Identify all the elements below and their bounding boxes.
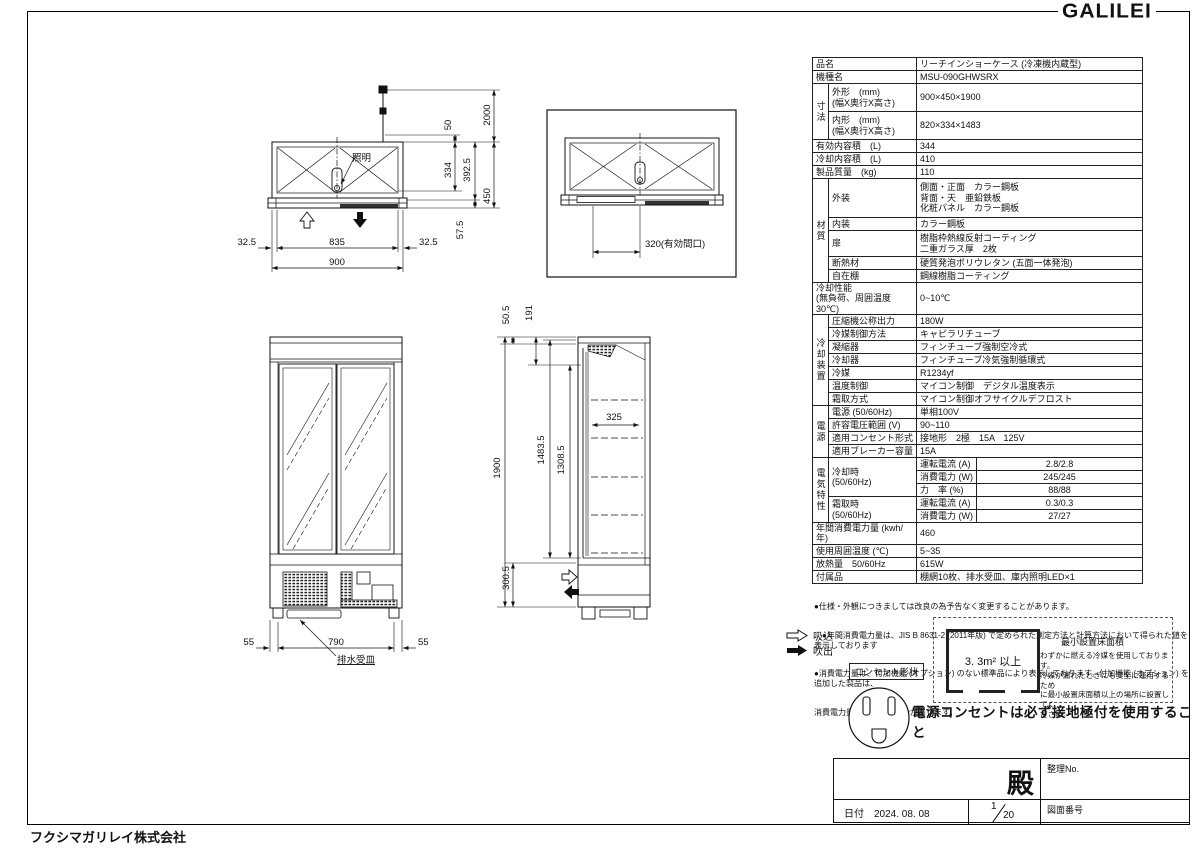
- spec-value-reibai: R1234yf: [917, 367, 1143, 380]
- spec-value-yuko: 344: [917, 140, 1143, 153]
- side-dim-1900: 1900: [492, 457, 503, 478]
- spec-value-hinmei: リーチインショーケース (冷凍機内蔵型): [917, 58, 1143, 71]
- technical-drawing: 照明 32.5 835 32.5 900: [27, 11, 812, 823]
- spec-label-asshuku: 圧縮機公称出力: [829, 315, 917, 328]
- spec-value-cool-pf: 88/88: [977, 484, 1143, 497]
- side-dim-1483-5: 1483.5: [536, 435, 547, 464]
- discharge-arrow-icon: [786, 644, 808, 657]
- spec-value-jizaidana: 鋼線樹脂コーティング: [917, 270, 1143, 283]
- door-gap-right: [1005, 690, 1021, 694]
- spec-label-kishumei: 機種名: [813, 71, 917, 84]
- spec-label-dannetsu: 断熱材: [829, 257, 917, 270]
- spec-value-mass: 110: [917, 166, 1143, 179]
- spec-label-shuui: 使用周囲温度 (℃): [813, 544, 917, 557]
- spec-group-denki: 電気特性: [813, 458, 829, 523]
- spec-label-reikyaku-naiyo: 冷却内容積 (L): [813, 153, 917, 166]
- side-dim-325: 325: [606, 412, 622, 423]
- plan-dim-334: 334: [443, 162, 454, 178]
- door-gap-left: [963, 690, 979, 694]
- front-dim-55-right: 55: [418, 637, 429, 648]
- spec-value-cool-current: 2.8/2.8: [977, 458, 1143, 471]
- spec-value-hounetsu: 615W: [917, 557, 1143, 570]
- min-floor-area-value-box: 3. 3m² 以上: [946, 629, 1040, 693]
- spec-table: 品名 リーチインショーケース (冷凍機内蔵型) 機種名 MSU-090GHWSR…: [812, 57, 1143, 584]
- spec-label-cooling: 冷却時 (50/60Hz): [829, 458, 917, 497]
- spec-value-reibai-seigyo: キャピラリチューブ: [917, 328, 1143, 341]
- front-dim-55-left: 55: [243, 637, 254, 648]
- spec-label-hounetsu: 放熱量 50/60Hz: [813, 557, 917, 570]
- spec-group-zaishitsu: 材質: [813, 179, 829, 283]
- spec-value-nenkan: 460: [917, 523, 1143, 545]
- spec-group-sunpo: 寸法: [813, 84, 829, 140]
- spec-label-dengen: 電源 (50/60Hz): [829, 406, 917, 419]
- spec-label-breaker: 適用ブレーカー容量: [829, 445, 917, 458]
- drawing-sheet: GALILEI フクシマガリレイ株式会社: [0, 0, 1200, 848]
- open-door-plan-view: 320(有効間口): [547, 110, 736, 277]
- spec-value-kyoyo: 90~110: [917, 419, 1143, 432]
- grounded-outlet-icon: [846, 686, 912, 752]
- plan-dim-57-5: 57.5: [455, 221, 466, 240]
- plan-dim-50: 50: [443, 120, 454, 131]
- spec-label-reibai-seigyo: 冷媒制御方法: [829, 328, 917, 341]
- title-block-top-row: 殿 整理No.: [834, 759, 1189, 800]
- spec-label-shimotori: 霜取方式: [829, 393, 917, 406]
- discharge-label: 吹出: [813, 643, 833, 658]
- min-floor-area-note: わずかに燃える冷媒を使用しております。 冷媒が漏れたときにも安全に運用するため …: [1040, 651, 1170, 720]
- min-floor-area-title: 最小設置床面積: [1061, 635, 1124, 648]
- date-cell: 日付 2024. 08. 08: [834, 800, 969, 824]
- side-section-view: 325: [492, 305, 650, 619]
- front-drain-label: 排水受皿: [337, 654, 376, 666]
- spec-value-fuzoku: 棚網10枚、排水受皿、庫内照明LED×1: [917, 570, 1143, 583]
- plan-light-label: 照明: [352, 153, 371, 164]
- spec-label-def-power: 消費電力 (W): [917, 510, 977, 523]
- spec-value-cool-power: 245/245: [977, 471, 1143, 484]
- spec-label-mass: 製品質量 (kg): [813, 166, 917, 179]
- spec-label-cool-power: 消費電力 (W): [917, 471, 977, 484]
- spec-label-jizaidana: 自在棚: [829, 270, 917, 283]
- spec-value-ondo: マイコン制御 デジタル温度表示: [917, 380, 1143, 393]
- spec-value-def-current: 0.3/0.3: [977, 497, 1143, 510]
- plan-dim-32-5-left: 32.5: [238, 237, 257, 248]
- spec-value-gaiso: 側面・正面 カラー鋼板 背面・天 亜鉛鉄板 化粧パネル カラー鋼板: [917, 179, 1143, 218]
- seiri-no-label: 整理No.: [1047, 762, 1079, 775]
- spec-label-kyoyo: 許容電圧範囲 (V): [829, 419, 917, 432]
- spec-label-tobira: 扉: [829, 231, 917, 257]
- spec-label-consent: 適用コンセント形式: [829, 432, 917, 445]
- front-dim-790: 790: [328, 637, 344, 648]
- spec-label-fuzoku: 付属品: [813, 570, 917, 583]
- suction-label: 吸込: [813, 628, 833, 643]
- spec-value-shuui: 5~35: [917, 544, 1143, 557]
- plan-dim-450: 450: [482, 188, 493, 204]
- front-view: 排水受皿 55 790 55: [243, 337, 428, 666]
- spec-value-seino: 0~10℃: [917, 283, 1143, 315]
- galilei-logo: GALILEI: [1058, 1, 1156, 24]
- spec-label-seino: 冷却性能 (無負荷、周囲温度30℃): [813, 283, 917, 315]
- spec-value-gyoshuku: フィンチューブ強制空冷式: [917, 341, 1143, 354]
- suction-arrow-side: [562, 570, 577, 584]
- suction-arrow-icon: [786, 629, 808, 642]
- spec-label-reibai: 冷媒: [829, 367, 917, 380]
- plan-dim-392-5: 392.5: [462, 158, 473, 182]
- spec-value-kishumei: MSU-090GHWSRX: [917, 71, 1143, 84]
- spec-label-yuko: 有効内容積 (L): [813, 140, 917, 153]
- spec-label-reikyakuki: 冷却器: [829, 354, 917, 367]
- spec-value-naikei: 820×334×1483: [917, 112, 1143, 140]
- spec-label-nenkan: 年間消費電力量 (kwh/年): [813, 523, 917, 545]
- airflow-legend: 吸込 吹出: [786, 628, 833, 658]
- outlet-shape-label: コンセント形状: [849, 663, 924, 680]
- spec-value-reikyakuki: フィンチューブ冷気強制循環式: [917, 354, 1143, 367]
- min-floor-area-value: 3. 3m² 以上: [965, 653, 1021, 669]
- spec-value-reikyaku-naiyo: 410: [917, 153, 1143, 166]
- spec-value-shimotori: マイコン制御オフサイクルデフロスト: [917, 393, 1143, 406]
- spec-value-asshuku: 180W: [917, 315, 1143, 328]
- company-name: フクシマガリレイ株式会社: [30, 827, 186, 846]
- spec-value-naiso: カラー鋼板: [917, 218, 1143, 231]
- spec-group-sochi: 冷却装置: [813, 315, 829, 406]
- spec-value-dengen: 単相100V: [917, 406, 1143, 419]
- spec-value-dannetsu: 硬質発泡ポリウレタン (五面一体発泡): [917, 257, 1143, 270]
- spec-value-consent: 接地形 2極 15A 125V: [917, 432, 1143, 445]
- spec-label-cool-pf: 力 率 (%): [917, 484, 977, 497]
- spec-label-naikei: 内形 (mm) (幅X奥行X高さ): [829, 112, 917, 140]
- spec-label-defrost: 霜取時 (50/60Hz): [829, 497, 917, 523]
- page-number: 1: [991, 801, 997, 812]
- title-block: 殿 整理No. 日付 2024. 08. 08 1 20 図面番号: [833, 758, 1190, 823]
- spec-label-hinmei: 品名: [813, 58, 917, 71]
- suction-arrow-plan: [300, 212, 314, 228]
- spec-label-gaikei: 外形 (mm) (幅X奥行X高さ): [829, 84, 917, 112]
- spec-group-dengen: 電源: [813, 406, 829, 458]
- spec-value-tobira: 樹脂枠熱線反射コーティング 二重ガラス厚 2枚: [917, 231, 1143, 257]
- spec-label-naiso: 内装: [829, 218, 917, 231]
- spec-value-gaikei: 900×450×1900: [917, 84, 1143, 112]
- spec-value-def-power: 27/27: [977, 510, 1143, 523]
- plan-dim-835: 835: [329, 237, 345, 248]
- side-dim-300-5: 300.5: [501, 566, 512, 590]
- footnote-line-1: ●仕様・外観につきましては改良の為予告なく変更することがあります。: [814, 602, 1192, 612]
- dono-suffix: 殿: [1007, 762, 1034, 801]
- open-dim-320: 320(有効間口): [645, 238, 705, 250]
- page-fraction-cell: 1 20: [969, 800, 1041, 824]
- spec-value-breaker: 15A: [917, 445, 1143, 458]
- side-dim-50-5: 50.5: [501, 306, 512, 325]
- drawing-no-cell: 図面番号: [1041, 800, 1191, 824]
- spec-label-gaiso: 外装: [829, 179, 917, 218]
- side-dim-191: 191: [524, 305, 535, 321]
- page-total: 20: [1003, 810, 1014, 821]
- min-floor-area-panel: 3. 3m² 以上 最小設置床面積 わずかに燃える冷媒を使用しております。 冷媒…: [933, 617, 1173, 703]
- spec-label-gyoshuku: 凝縮器: [829, 341, 917, 354]
- side-dim-1308-5: 1308.5: [556, 445, 567, 474]
- plan-dim-32-5-right: 32.5: [419, 237, 438, 248]
- plan-view: 照明 32.5 835 32.5 900: [238, 86, 501, 272]
- spec-label-def-current: 運転電流 (A): [917, 497, 977, 510]
- plan-dim-2000: 2000: [482, 104, 493, 125]
- spec-label-cool-current: 運転電流 (A): [917, 458, 977, 471]
- plan-dim-900: 900: [329, 257, 345, 268]
- spec-label-ondo: 温度制御: [829, 380, 917, 393]
- discharge-arrow-side: [564, 585, 579, 599]
- discharge-arrow-plan: [353, 212, 367, 228]
- customer-name-cell: 殿: [834, 759, 1041, 800]
